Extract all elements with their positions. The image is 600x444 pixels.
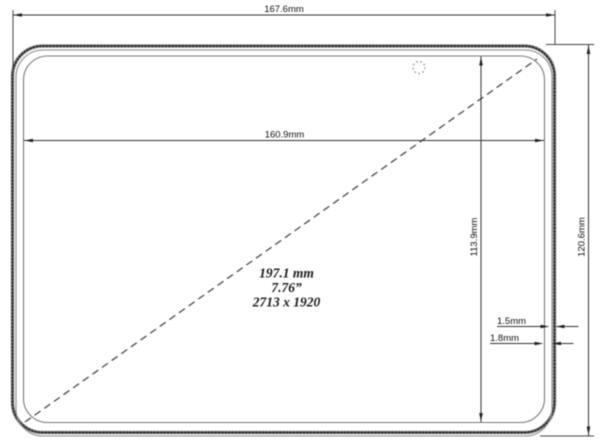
svg-text:1.5mm: 1.5mm <box>497 316 526 327</box>
svg-text:160.9mm: 160.9mm <box>265 130 305 141</box>
svg-text:113.9mm: 113.9mm <box>469 217 480 256</box>
svg-text:7.76”: 7.76” <box>271 280 302 295</box>
svg-text:2713 x 1920: 2713 x 1920 <box>252 295 321 310</box>
svg-text:1.8mm: 1.8mm <box>490 333 519 344</box>
svg-text:197.1 mm: 197.1 mm <box>259 266 314 281</box>
svg-text:120.6mm: 120.6mm <box>577 217 588 257</box>
svg-text:167.6mm: 167.6mm <box>264 4 304 15</box>
